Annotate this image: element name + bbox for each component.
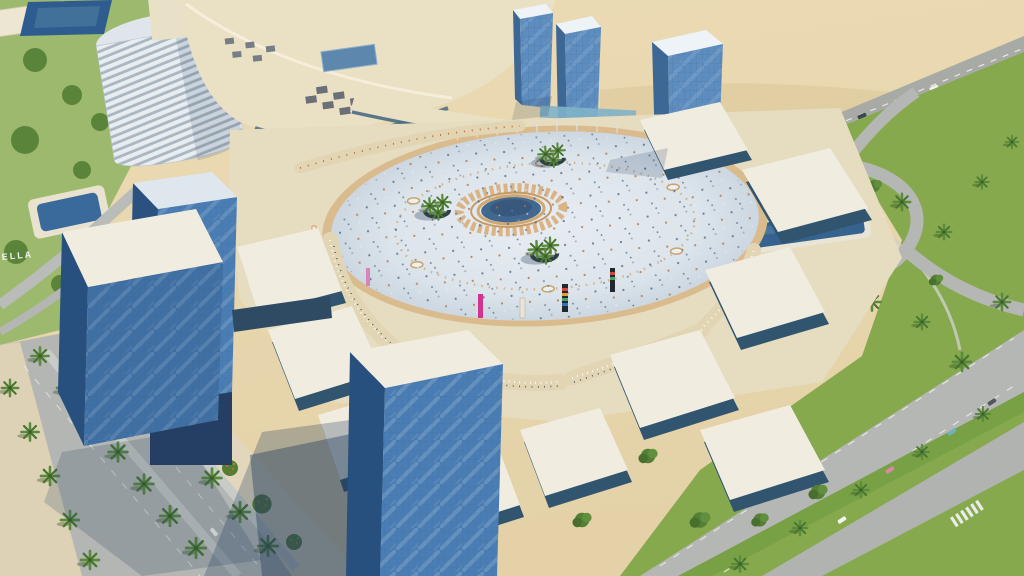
center-foreground-tower xyxy=(346,330,503,576)
banner-totem xyxy=(478,294,483,318)
tower-side-face xyxy=(346,352,385,576)
glass-tower-1 xyxy=(513,4,553,108)
banner-totem xyxy=(520,298,525,318)
banner-totem xyxy=(610,268,615,292)
left-front-tower xyxy=(58,209,223,446)
architectural-rendering: ELLA xyxy=(0,0,1024,576)
rendering-canvas: ELLA xyxy=(0,0,1024,576)
banner-totem xyxy=(562,284,568,312)
banner-totem xyxy=(366,268,370,286)
resort-pool-inner xyxy=(34,6,100,28)
